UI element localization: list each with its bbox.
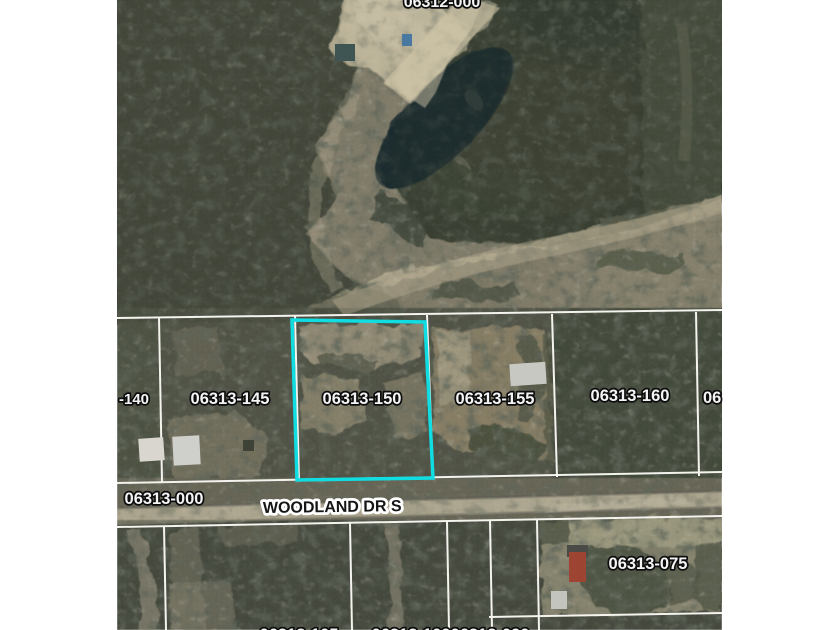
svg-text:-140: -140 xyxy=(119,391,149,408)
svg-text:06313-145: 06313-145 xyxy=(191,390,270,408)
svg-text:WOODLAND DR S: WOODLAND DR S xyxy=(263,498,402,517)
svg-text:06312-000: 06312-000 xyxy=(404,0,481,11)
svg-text:06313-160: 06313-160 xyxy=(591,387,670,405)
svg-text:06313-155: 06313-155 xyxy=(456,390,535,408)
svg-text:06313-105: 06313-105 xyxy=(260,626,339,630)
svg-text:06313-075: 06313-075 xyxy=(609,555,688,573)
svg-text:06313-150: 06313-150 xyxy=(323,390,402,408)
svg-text:06313-000: 06313-000 xyxy=(125,490,204,508)
svg-text:06313-100: 06313-100 xyxy=(372,626,451,630)
svg-text:06: 06 xyxy=(703,389,721,407)
svg-text:06313-090: 06313-090 xyxy=(451,626,530,630)
